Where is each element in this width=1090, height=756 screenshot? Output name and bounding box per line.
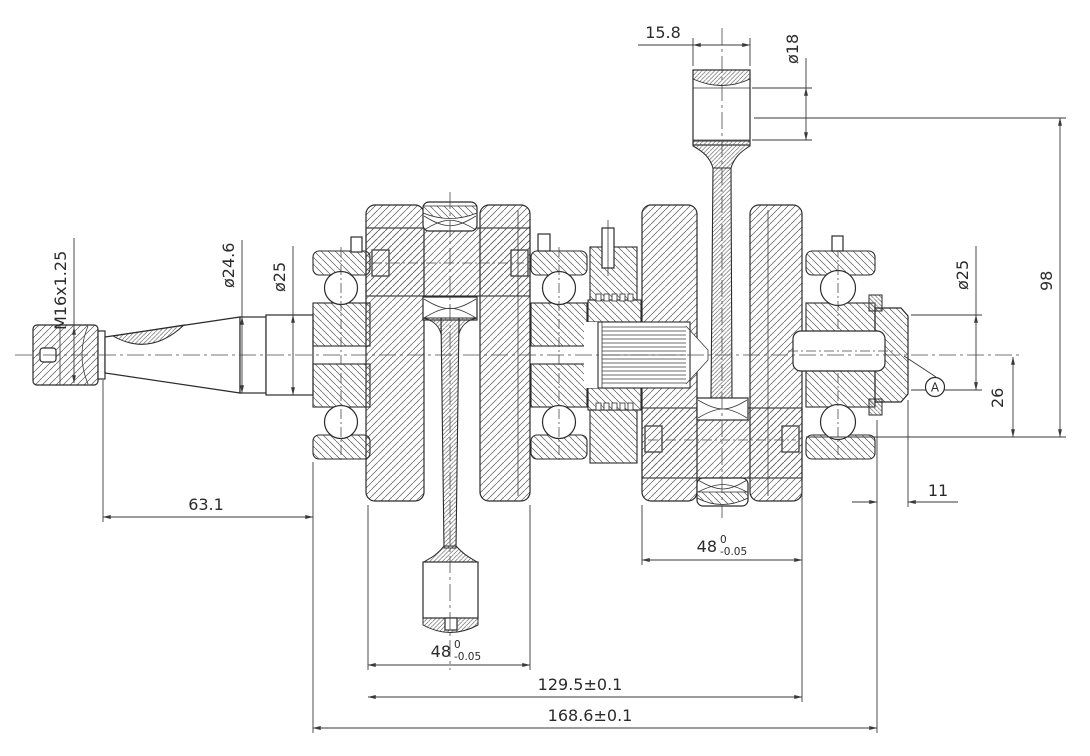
center-main-bearing xyxy=(531,234,587,463)
dim-end-length-label: 11 xyxy=(928,481,948,500)
dim-left-journal-dia-label: ø25 xyxy=(270,262,289,292)
right-big-end-cage xyxy=(697,398,748,420)
datum-a-label: A xyxy=(931,381,940,395)
left-main-bearing xyxy=(313,237,370,463)
dim-overall-span-label: 168.6±0.1 xyxy=(548,706,633,725)
bearing-locating-key xyxy=(538,234,550,251)
coupling-flange-top xyxy=(588,300,641,322)
dim-right-crank-width-nominal: 48 xyxy=(697,537,717,556)
dim-mid-span: 129.5±0.1 xyxy=(368,675,802,697)
right-pin-bottom-cap xyxy=(697,478,748,506)
dim-right-journal-dia-label: ø25 xyxy=(953,260,972,290)
inner-race-top xyxy=(313,303,370,346)
dim-taper-dia-label: ø24.6 xyxy=(219,243,238,288)
dim-left-crank-width-upper-tol: 0 xyxy=(454,639,461,651)
upper-flare xyxy=(693,141,750,168)
inner-race-bottom xyxy=(313,364,370,407)
crankshaft-section-drawing: M16x1.25 ø24.6 ø25 63.1 15.8 ø18 xyxy=(0,0,1090,756)
dim-left-crank-width-nominal: 48 xyxy=(431,642,451,661)
coupling-block-bottom xyxy=(590,410,637,463)
small-end-cap-notch xyxy=(445,618,457,630)
small-end-flare xyxy=(424,546,477,562)
dim-pin-bore-dia-label: ø18 xyxy=(783,34,802,64)
dim-overall-span: 168.6±0.1 xyxy=(313,706,877,728)
dim-pin-bore-dia: ø18 xyxy=(752,34,812,140)
dim-left-crank-width-lower-tol: -0.05 xyxy=(454,651,481,663)
rod-shank xyxy=(711,168,732,398)
dim-taper-length: 63.1 xyxy=(103,380,313,733)
piston-pin-boss xyxy=(693,70,750,145)
dim-small-end-width-label: 15.8 xyxy=(645,23,681,42)
technical-drawing-canvas: M16x1.25 ø24.6 ø25 63.1 15.8 ø18 xyxy=(0,0,1090,756)
bearing-locating-key xyxy=(832,236,843,251)
dim-right-crank-width-lower-tol: -0.05 xyxy=(720,546,747,558)
dim-taper-length-label: 63.1 xyxy=(188,495,224,514)
bearing-locating-key xyxy=(351,237,362,252)
dim-right-journal-dia: ø25 xyxy=(911,246,982,390)
dim-overall-throw-label: 98 xyxy=(1037,271,1056,291)
small-end-bore xyxy=(423,562,478,618)
left-crank-web-right xyxy=(480,205,530,501)
left-crank-web-left xyxy=(366,205,424,501)
datum-leader xyxy=(904,356,936,377)
dim-thread-label: M16x1.25 xyxy=(51,251,70,330)
dim-pin-offset-label: 26 xyxy=(988,388,1007,408)
dim-mid-span-label: 129.5±0.1 xyxy=(538,675,623,694)
dim-pin-offset: 26 xyxy=(988,357,1013,437)
dim-small-end-width: 15.8 xyxy=(638,23,750,66)
dim-right-crank-width-upper-tol: 0 xyxy=(720,534,727,546)
